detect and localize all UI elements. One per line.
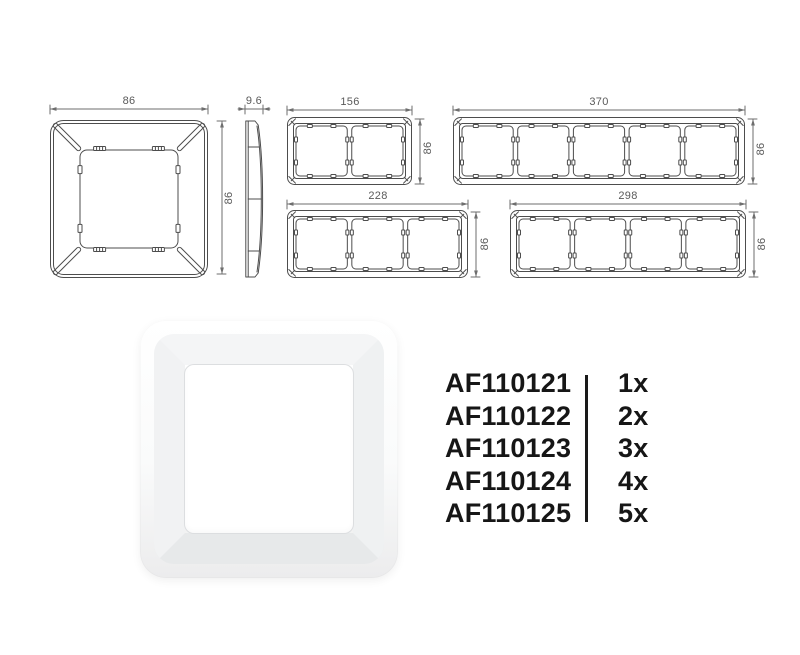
part-code: AF110121: [445, 367, 585, 400]
part-code: AF110124: [445, 465, 585, 498]
part-code: AF110125: [445, 497, 585, 530]
dim-label-gang4-height: 86: [756, 238, 768, 251]
part-qty: 3x: [618, 432, 648, 465]
part-qty: 2x: [618, 400, 648, 433]
part-qty: 1x: [618, 367, 648, 400]
dim-label-single-height: 86: [223, 192, 235, 205]
dim-label-gang2-width: 156: [340, 96, 359, 108]
part-code: AF110123: [445, 432, 585, 465]
product-photo: [140, 320, 398, 578]
product-photo-opening: [185, 365, 353, 533]
dim-label-gang3-height: 86: [479, 238, 491, 251]
part-qty: 4x: [618, 465, 648, 498]
part-code: AF110122: [445, 400, 585, 433]
dim-label-single-width: 86: [123, 95, 136, 107]
dim-label-gang5-height: 86: [755, 143, 767, 156]
part-codes-column: AF110121 AF110122 AF110123 AF110124 AF11…: [445, 367, 585, 530]
part-quantities-column: 1x 2x 3x 4x 5x: [618, 367, 648, 530]
dim-label-gang2-height: 86: [422, 142, 434, 155]
dim-label-side-thickness: 9.6: [246, 95, 262, 107]
dim-label-gang3-width: 228: [368, 190, 387, 202]
part-number-list: AF110121 AF110122 AF110123 AF110124 AF11…: [445, 367, 648, 530]
part-list-divider: [585, 375, 588, 522]
dim-label-gang4-width: 298: [618, 190, 637, 202]
part-qty: 5x: [618, 497, 648, 530]
dim-label-gang5-width: 370: [589, 96, 608, 108]
technical-drawings: [0, 0, 800, 655]
catalog-page: 86 9.6 86 156 86 370 86 228 86 298 86 AF…: [0, 0, 800, 655]
